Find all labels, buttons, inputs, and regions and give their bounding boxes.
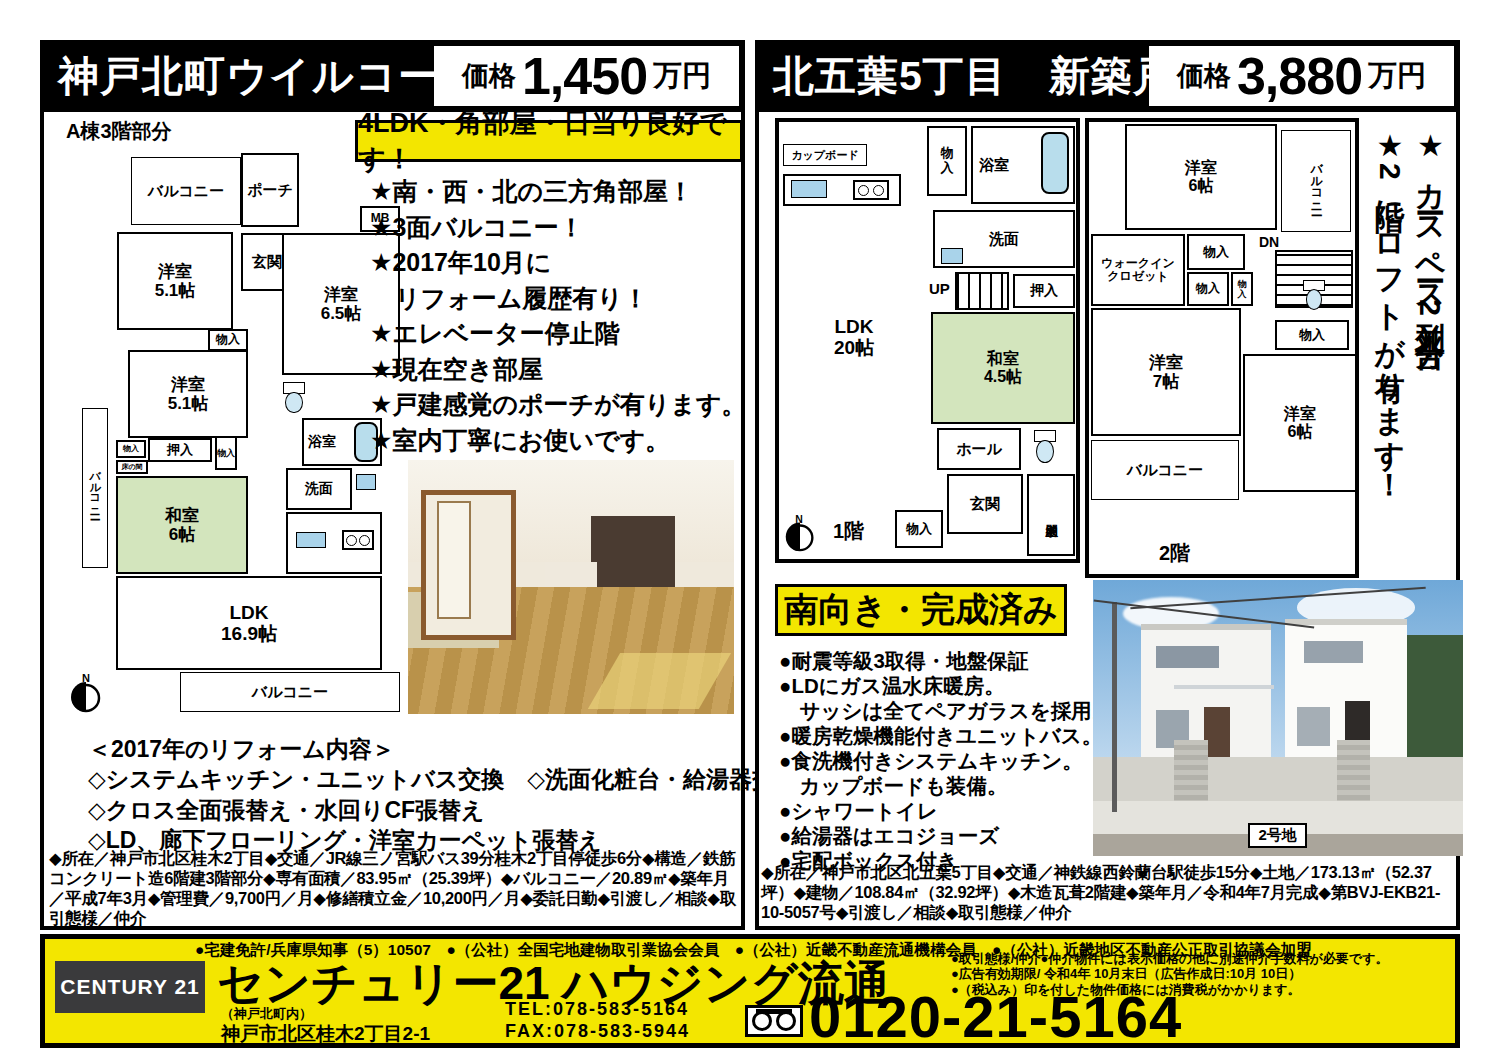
- room-closet-a-2f: 物入: [1187, 234, 1245, 270]
- footer-bar: ●宅建免許/兵庫県知事（5）10507 ●（公社）全国宅地建物取引業協会会員 ●…: [40, 934, 1460, 1048]
- room-yoshitsu-c-2f: 洋室 6帖: [1243, 354, 1357, 492]
- exterior-photo: 2号地: [1093, 580, 1463, 856]
- feature-item: ★エレベーター停止階: [370, 316, 742, 352]
- feature-item: カップボードも装備。: [779, 773, 1109, 798]
- stairs-up-label: UP: [929, 280, 950, 297]
- room-closet-b-2f: 物入: [1187, 272, 1229, 306]
- right-price-box: 価格 3,880 万円: [1149, 46, 1454, 106]
- feature-item: ★戸建感覚のポーチが有ります。: [370, 387, 742, 423]
- left-building-note: A棟3階部分: [66, 118, 172, 145]
- price-label: 価格: [462, 58, 516, 94]
- feature-item: ★南・西・北の三方角部屋！: [370, 174, 742, 210]
- room-closet-small: 物入: [116, 440, 146, 458]
- right-highlight-banner: 南向き・完成済み: [775, 584, 1067, 636]
- fax-number: FAX:078-583-5944: [505, 1021, 690, 1042]
- floor-plan-2f: 洋室 6帖 バルコニー ウォークイン クロゼット 物入 物入 物 入 DN 洋室…: [1085, 118, 1359, 578]
- vertical-note: ★カースペース並列2台分！: [1410, 128, 1451, 614]
- feature-item: ●LDにガス温水床暖房。: [779, 673, 1109, 698]
- room-yoshitsu-a-2f: 洋室 6帖: [1125, 124, 1277, 230]
- room-washitsu-1f: 和室 4.5帖: [931, 312, 1075, 424]
- room-yoshitsu-c: 洋室 5.1帖: [128, 350, 248, 438]
- room-closet-a-1f: 物 入: [927, 126, 967, 196]
- left-property-title: 神戸北町ウイルコート: [40, 49, 483, 104]
- left-property-details: ◆所在／神戸市北区桂木2丁目◆交通／JR線三ノ宮駅バス39分桂木2丁目停徒歩6分…: [49, 848, 737, 929]
- room-cupboard: カップボード: [783, 144, 867, 166]
- feature-item: サッシは全てペアガラスを採用。: [779, 698, 1109, 723]
- century21-logo: CENTURY 21: [55, 961, 205, 1013]
- sink-icon: [356, 474, 376, 490]
- feature-item: ★現在空き部屋: [370, 352, 742, 388]
- left-header-bar: 神戸北町ウイルコート 価格 1,450 万円: [40, 40, 745, 112]
- tel-number: TEL:078-583-5164: [505, 999, 689, 1020]
- reform-section: ＜2017年のリフォーム内容＞ ◇システムキッチン・ユニットバス交換 ◇洗面化粧…: [88, 734, 738, 855]
- room-closet-d-2f: 物入: [1275, 320, 1349, 350]
- floor-label-2f: 2階: [1159, 540, 1190, 567]
- left-property-panel: 神戸北町ウイルコート 価格 1,450 万円 A棟3階部分 バルコニー ポーチ …: [40, 40, 745, 930]
- room-doma-1f: 土間収納: [1027, 474, 1075, 556]
- room-porch: ポーチ: [241, 153, 299, 227]
- footer-note: ●（税込み）印を付した物件価格には消費税がかかります。: [951, 982, 1459, 997]
- toilet-icon: [1301, 280, 1325, 310]
- left-highlight-banner: 4LDK・角部屋・日当り良好です！: [355, 120, 743, 162]
- left-price-box: 価格 1,450 万円: [434, 46, 739, 106]
- left-feature-list: ★南・西・北の三方角部屋！ ★3面バルコニー！ ★2017年10月に リフォーム…: [370, 174, 742, 458]
- left-floor-plan: バルコニー ポーチ MB 玄関 洋室 5.1帖 洋室 6.5帖 物入 洋室 5.…: [60, 150, 400, 726]
- stairs-up: [955, 272, 1009, 310]
- stove-icon: [853, 180, 889, 200]
- reform-item: ◇システムキッチン・ユニットバス交換 ◇洗面化粧台・給湯器交換: [88, 764, 738, 794]
- floor-plan-1f: カップボード 物 入 浴室 洗面 UP 押入 LDK 20帖 和室 4.5帖 ホ…: [775, 118, 1080, 563]
- room-balcony-left: バルコニー: [82, 408, 108, 568]
- room-closet-c-2f: 物 入: [1231, 272, 1253, 306]
- feature-item: リフォーム履歴有り！: [370, 281, 742, 317]
- feature-item: ★室内丁寧にお使いです。: [370, 423, 742, 459]
- right-property-details: ◆所在／神戸市北区北五葉5丁目◆交通／神鉄線西鈴蘭台駅徒歩15分◆土地／173.…: [761, 862, 1455, 922]
- footer-note: ●取引態様/仲介●仲介物件には表示価格の他に別途仲介手数料が必要です。: [951, 951, 1459, 966]
- room-closet: 物入: [208, 329, 248, 351]
- right-header-bar: 北五葉5丁目 新築戸建 価格 3,880 万円: [755, 40, 1460, 112]
- feature-item: ●給湯器はエコジョーズ: [779, 823, 1109, 848]
- sink-icon: [941, 248, 963, 264]
- kitchen-sink-icon: [296, 532, 326, 548]
- floor-label-1f: 1階: [833, 518, 864, 545]
- room-genkan-1f: 玄関: [947, 474, 1023, 534]
- room-oshiire: 押入: [148, 438, 212, 462]
- room-balcony-top-2f: バルコニー: [1281, 130, 1351, 232]
- feature-item: ●耐震等級3取得・地盤保証: [779, 648, 1109, 673]
- feature-item: ●暖房乾燥機能付きユニットバス。: [779, 723, 1109, 748]
- right-property-panel: 北五葉5丁目 新築戸建 価格 3,880 万円 カップボード 物 入 浴室 洗面…: [755, 40, 1460, 930]
- feature-item: ★2017年10月に: [370, 245, 742, 281]
- price-unit: 万円: [1368, 56, 1426, 96]
- right-price-value: 3,880: [1237, 50, 1362, 102]
- toilet-icon: [1031, 430, 1057, 464]
- room-senmen: 洗面: [286, 468, 352, 510]
- real-estate-flyer: { "left": { "title": "神戸北町ウイルコート", "pric…: [0, 0, 1500, 1061]
- right-property-title: 北五葉5丁目 新築戸建: [755, 49, 1217, 104]
- price-unit: 万円: [653, 56, 711, 96]
- stairs-down-label: DN: [1257, 234, 1281, 250]
- interior-photo: [408, 460, 734, 714]
- feature-item: ★3面バルコニー！: [370, 210, 742, 246]
- bathtub-icon: [1041, 132, 1069, 194]
- feature-item: ●シャワートイレ: [779, 798, 1109, 823]
- room-balcony-bottom-2f: バルコニー: [1091, 440, 1239, 500]
- room-wic-2f: ウォークイン クロゼット: [1091, 234, 1185, 306]
- compass-icon: N: [781, 512, 819, 556]
- stove-icon: [342, 530, 374, 550]
- toilet-icon: [280, 382, 306, 414]
- left-price-value: 1,450: [522, 50, 647, 102]
- room-ldk: LDK 16.9帖: [116, 576, 382, 670]
- room-yoshitsu-a: 洋室 5.1帖: [117, 232, 233, 330]
- feature-item: ●食洗機付きシステムキッチン。: [779, 748, 1109, 773]
- room-yoshitsu-b-2f: 洋室 7帖: [1091, 308, 1241, 436]
- right-feature-list: ●耐震等級3取得・地盤保証 ●LDにガス温水床暖房。 サッシは全てペアガラスを採…: [779, 648, 1109, 873]
- price-label: 価格: [1177, 58, 1231, 94]
- room-closet-side: 物入: [215, 436, 237, 470]
- company-address: 神戸市北区桂木2丁目2-1: [221, 1021, 430, 1047]
- room-ldk-1f: LDK 20帖: [799, 302, 909, 372]
- compass-icon: N: [66, 672, 106, 716]
- room-oshiire-1f: 押入: [1013, 274, 1075, 308]
- reform-title: ＜2017年のリフォーム内容＞: [88, 734, 738, 764]
- kitchen-sink-icon: [791, 180, 827, 198]
- footer-notes: ●取引態様/仲介●仲介物件には表示価格の他に別途仲介手数料が必要です。 ●広告有…: [951, 951, 1459, 997]
- room-closet-b-1f: 物入: [895, 510, 943, 548]
- room-balcony-top: バルコニー: [131, 157, 241, 225]
- photo-lot-label: 2号地: [1248, 823, 1306, 848]
- freedial-icon: [745, 1005, 803, 1037]
- room-balcony-bottom: バルコニー: [180, 672, 400, 712]
- vertical-note: ★2階にロフトが有ります！: [1369, 128, 1410, 614]
- room-tokonoma: 床の間: [116, 460, 148, 474]
- reform-item: ◇クロス全面張替え・水回りCF張替え: [88, 795, 738, 825]
- room-washitsu: 和室 6帖: [116, 476, 248, 574]
- room-hall-1f: ホール: [937, 428, 1021, 470]
- vertical-sales-copy: ★カースペース並列2台分！ ★2階にロフトが有ります！: [1369, 128, 1450, 614]
- footer-note: ●広告有効期限/ 令和4年 10月末日（広告作成日:10月 10日）: [951, 966, 1459, 981]
